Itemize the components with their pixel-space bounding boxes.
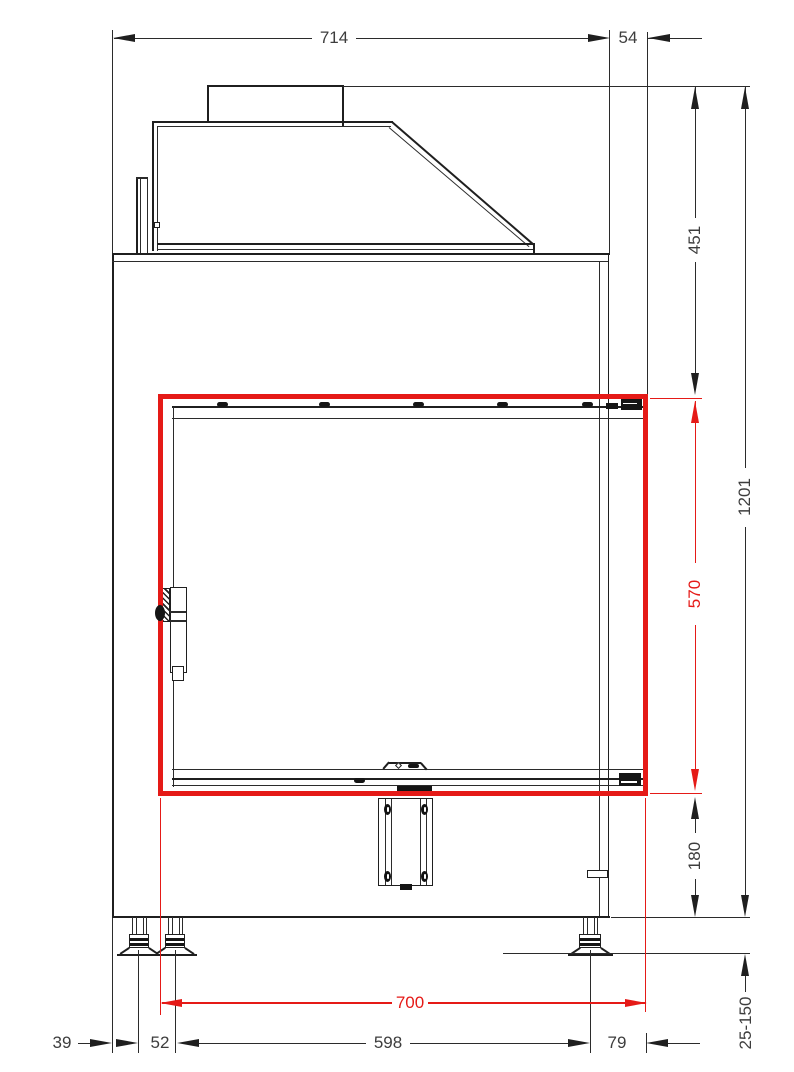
- dim-upper-section-height: 451: [686, 220, 704, 260]
- flue-box-top-edge: [207, 85, 343, 87]
- pipe-top-edge: [136, 177, 148, 179]
- foot-collar-rib: [580, 943, 600, 946]
- hood-slope-edge: [391, 121, 534, 245]
- pipe-inner-edge: [140, 178, 141, 253]
- pipe-left-edge: [136, 177, 138, 253]
- foot-collar-rib: [130, 938, 148, 941]
- dim-451-arrow-top: [691, 87, 699, 109]
- ext-line-left-bottom: [112, 918, 113, 1053]
- dim-glass-height: 570: [686, 574, 704, 614]
- dim-570-line-b: [695, 625, 696, 769]
- bracket-hole-tr-slit: [424, 807, 426, 812]
- dim-570-arrow-bottom: [691, 769, 699, 791]
- hood-bottom-inner-edge: [157, 249, 535, 250]
- ext-line-left: [112, 30, 113, 253]
- dim-1201-line-a: [745, 87, 746, 468]
- dim-39-arrow-b: [116, 1039, 138, 1047]
- dim-glass-width: 700: [393, 994, 427, 1012]
- dim-side-offset: 54: [613, 29, 643, 47]
- flue-box-left-edge: [207, 85, 209, 122]
- hood-slope-inner-edge: [389, 127, 530, 247]
- dim-79-arrow: [646, 1039, 668, 1047]
- body-left-edge: [112, 253, 114, 917]
- bracket-hole-br-slit: [424, 874, 426, 879]
- dim-180-arrow-top: [691, 797, 699, 819]
- foot-stem-line: [597, 917, 598, 935]
- dim-1201-arrow-bottom: [741, 895, 749, 917]
- technical-drawing-canvas: 714 54 451 1201 180 25-150: [0, 0, 794, 1072]
- dim-598-arrow-right: [568, 1039, 590, 1047]
- dim-39-arrow-a: [90, 1039, 112, 1047]
- dim-overall-width: 714: [314, 29, 354, 47]
- foot-stem-line: [594, 917, 595, 935]
- foot-collar-rib: [580, 938, 600, 941]
- red-ext-top: [650, 398, 702, 399]
- dim-714-arrow-left: [113, 34, 135, 42]
- hood-top-edge: [152, 121, 393, 123]
- dim-79-tail: [668, 1043, 700, 1044]
- ext-line-body-bottom: [611, 917, 750, 918]
- dim-foot-to-glass-edge: 79: [603, 1034, 631, 1052]
- dim-451-line-b: [695, 262, 696, 374]
- dim-714-arrow-right: [588, 34, 610, 42]
- ext-line-floor: [503, 953, 750, 954]
- dim-700-arrow-right: [625, 999, 647, 1007]
- dim-overall-height: 1201: [736, 475, 754, 519]
- pipe-right-edge: [147, 178, 148, 253]
- foot-stem-line: [583, 917, 584, 935]
- dim-180-line-a: [695, 819, 696, 833]
- dim-1201-arrow-top: [741, 87, 749, 109]
- body-top-inner-edge: [112, 261, 608, 262]
- foot-stem-line: [143, 917, 144, 935]
- dim-451-arrow-bottom: [691, 373, 699, 395]
- foot-collar: [579, 934, 601, 948]
- foot-stem-line: [168, 917, 169, 935]
- dim-598-arrow-left: [177, 1039, 199, 1047]
- glass-opening-frame: [158, 394, 648, 796]
- ext-line-top-horizontal: [343, 86, 750, 87]
- foot-stem-line: [132, 917, 133, 935]
- ext-line-body-right: [609, 30, 610, 253]
- dim-180-line-b: [695, 879, 696, 895]
- foot-collar: [165, 934, 185, 948]
- dim-714-line-b: [356, 38, 588, 39]
- foot-stem-line: [179, 917, 180, 935]
- bracket-bottom-stud: [400, 884, 412, 890]
- dim-598-line-a: [199, 1043, 366, 1044]
- foot-collar-rib: [130, 943, 148, 946]
- hood-top-inner-edge: [157, 126, 391, 127]
- hood-clip-detail: [154, 222, 160, 228]
- dim-54-arrow: [648, 34, 670, 42]
- dim-700-line-b: [428, 1002, 645, 1004]
- red-ext-left-vertical: [160, 798, 161, 1015]
- hood-left-edge: [152, 121, 154, 251]
- right-wall-bracket: [587, 870, 608, 878]
- foot-collar-rib: [166, 938, 184, 941]
- foot-collar-rib: [166, 943, 184, 946]
- dim-180-arrow-bottom: [691, 895, 699, 917]
- foot-stem-line: [172, 917, 173, 935]
- body-bottom-edge: [112, 916, 610, 919]
- bracket-hole-tl-slit: [387, 807, 389, 812]
- dim-700-arrow-left: [160, 999, 182, 1007]
- dim-700-line-a: [162, 1002, 392, 1004]
- dim-lower-section-height: 180: [686, 836, 704, 876]
- foot-stem-line: [136, 917, 137, 935]
- dim-feet-tail: [745, 976, 746, 992]
- dim-570-arrow-top: [691, 401, 699, 423]
- dim-feet-span: 598: [368, 1034, 408, 1052]
- foot-stem-line: [146, 917, 147, 935]
- foot-collar: [129, 934, 149, 948]
- bracket-rail-l2: [391, 799, 393, 885]
- bracket-hole-bl-slit: [387, 874, 389, 879]
- dim-714-line-a: [114, 38, 312, 39]
- foot-stem-line: [182, 917, 183, 935]
- body-top-edge: [112, 253, 610, 255]
- hood-left-inner-edge: [157, 126, 158, 251]
- hood-bottom-right-step: [533, 243, 535, 253]
- hood-bottom-edge: [157, 243, 535, 245]
- dim-foot-spacing: 52: [146, 1034, 174, 1052]
- ext-line-foot1: [138, 950, 139, 1053]
- red-ext-right-vertical: [645, 798, 646, 1012]
- dim-leveling-feet-range: 25-150: [737, 993, 755, 1053]
- dim-570-line-a: [695, 401, 696, 563]
- dim-feet-arrow: [741, 954, 749, 976]
- foot-stem-line: [587, 917, 588, 935]
- handle-pivot-blob: [155, 605, 165, 621]
- dim-edge-to-first-foot: 39: [48, 1034, 76, 1052]
- red-ext-bottom: [650, 793, 702, 794]
- dim-1201-line-b: [745, 527, 746, 895]
- feet-left-base-plate: [117, 954, 197, 957]
- dim-598-line-b: [410, 1043, 568, 1044]
